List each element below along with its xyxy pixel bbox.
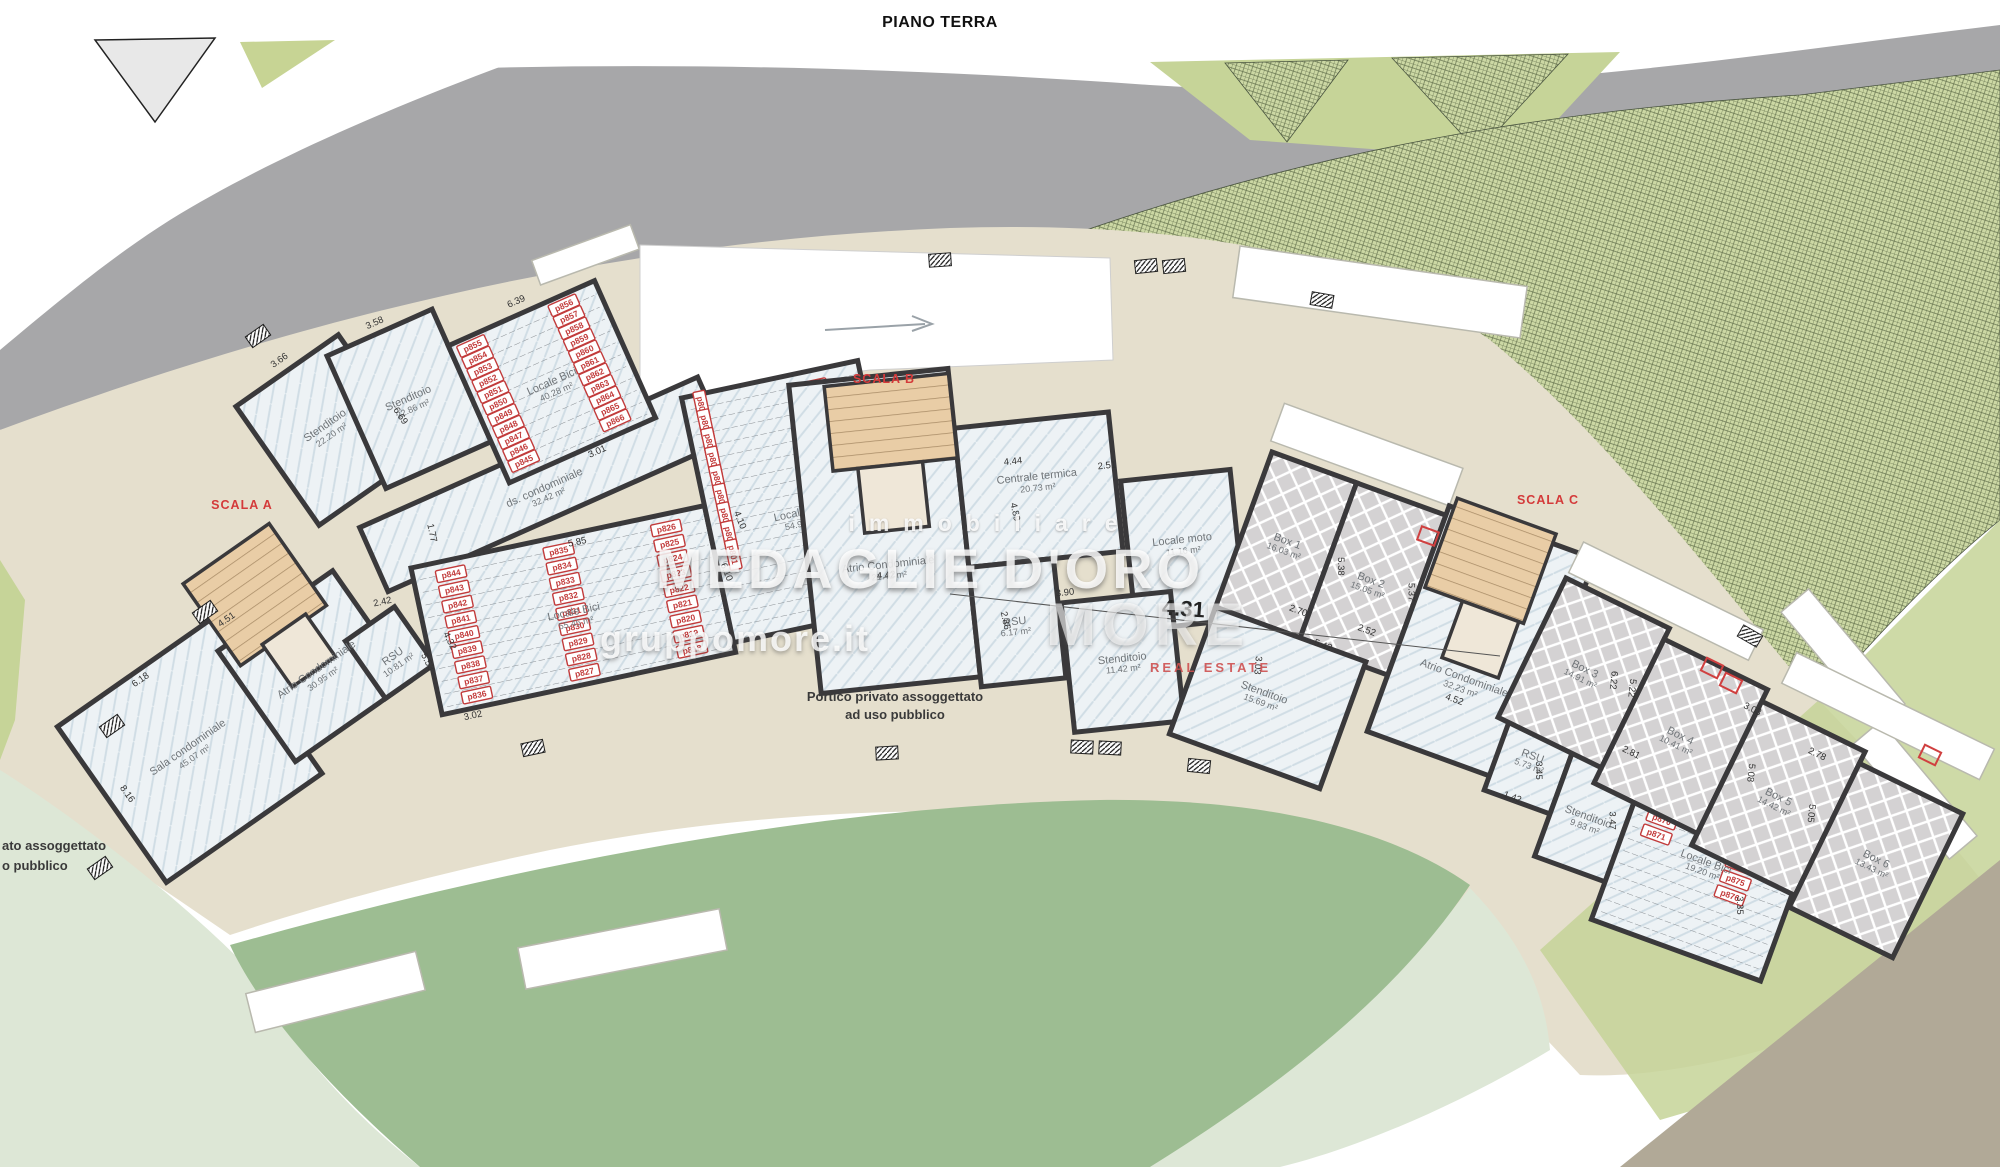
floor-plan-page: Sala condominiale45.07 m² Atrio Condomin… [0, 0, 2000, 1167]
elevator-b [858, 462, 929, 533]
label-scala-a: SCALA A [211, 498, 273, 512]
dimension-label: 3.47 [1606, 811, 1617, 830]
stairs-scala-b [824, 373, 957, 471]
dimension-label: 6.22 [1607, 670, 1620, 690]
dimension-label: 3.03 [1251, 656, 1264, 675]
dimension-label: 4.44 [1003, 455, 1023, 468]
dimension-label: 5.38 [1335, 557, 1346, 576]
dimension-label: 3.90 [1055, 587, 1075, 600]
dimension-label: 5.22 [1625, 678, 1638, 698]
dimension-label: 5.37 [1405, 583, 1416, 602]
label-scala-c: SCALA C [1517, 493, 1579, 507]
dimension-label: 2.51 [1097, 459, 1117, 472]
dimension-label: 5.08 [1744, 763, 1757, 783]
floor-plan-drawing: Sala condominiale45.07 m² Atrio Condomin… [0, 0, 2000, 1167]
label-scala-b: SCALA B [853, 372, 915, 386]
dimension-label: 3.35 [1734, 896, 1745, 915]
dimension-label: 5.05 [1805, 804, 1818, 824]
dimension-label: 3.45 [1533, 761, 1544, 780]
dimension-label: 4.42 [876, 569, 896, 582]
